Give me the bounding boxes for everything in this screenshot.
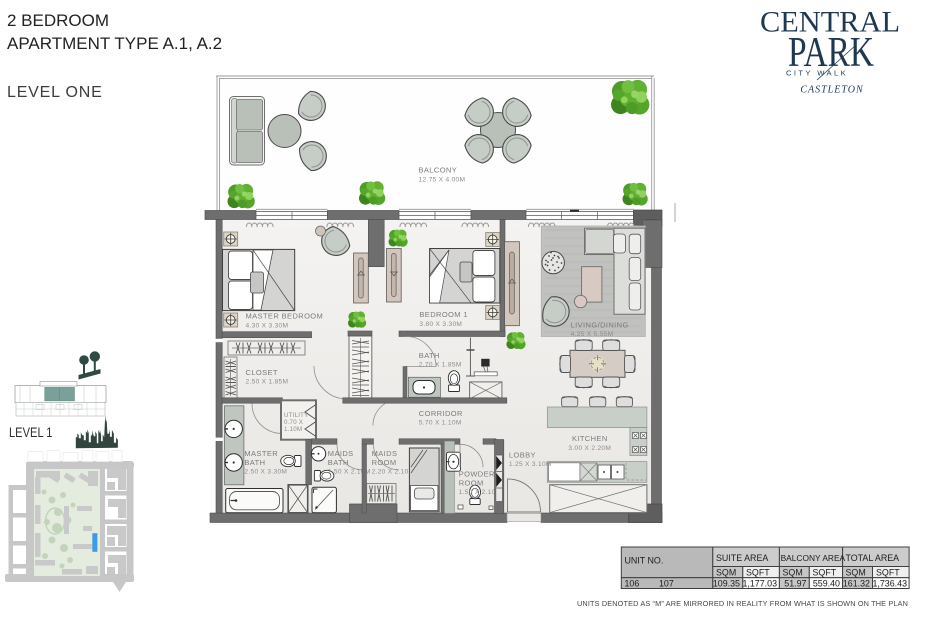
svg-text:APARTMENT TYPE A.1, A.2: APARTMENT TYPE A.1, A.2	[7, 34, 222, 53]
svg-text:TOTAL AREA: TOTAL AREA	[846, 553, 900, 563]
svg-text:LEVEL 1: LEVEL 1	[9, 425, 53, 440]
svg-text:3.00 X 2.20M: 3.00 X 2.20M	[568, 445, 611, 452]
svg-text:12.75 X 4.00M: 12.75 X 4.00M	[419, 177, 466, 184]
svg-text:BEDROOM 1: BEDROOM 1	[419, 310, 468, 319]
svg-text:MASTER: MASTER	[244, 449, 278, 458]
svg-text:2 BEDROOM: 2 BEDROOM	[7, 11, 109, 30]
svg-text:2.70 X 1.85M: 2.70 X 1.85M	[419, 362, 462, 369]
svg-text:1,736.43: 1,736.43	[872, 578, 907, 588]
svg-text:ROOM: ROOM	[459, 479, 484, 488]
svg-text:LOBBY: LOBBY	[509, 451, 536, 460]
svg-text:559.40: 559.40	[813, 578, 840, 588]
svg-text:CORRIDOR: CORRIDOR	[419, 409, 463, 418]
svg-text:4.25 X 5.55M: 4.25 X 5.55M	[571, 331, 614, 338]
svg-text:BALCONY: BALCONY	[419, 166, 458, 175]
svg-text:BATH: BATH	[419, 351, 440, 360]
svg-text:LEVEL ONE: LEVEL ONE	[7, 84, 103, 101]
svg-text:SUITE AREA: SUITE AREA	[716, 553, 768, 563]
svg-text:SQFT: SQFT	[876, 568, 900, 578]
svg-text:106: 106	[625, 578, 640, 588]
svg-text:BATH: BATH	[244, 458, 265, 467]
svg-text:MASTER BEDROOM: MASTER BEDROOM	[246, 312, 324, 321]
svg-text:SQFT: SQFT	[813, 568, 837, 578]
svg-text:107: 107	[659, 578, 674, 588]
svg-text:UTILITY: UTILITY	[284, 412, 308, 419]
svg-text:BATH: BATH	[328, 458, 349, 467]
svg-text:1.25 X 3.10M: 1.25 X 3.10M	[509, 461, 552, 468]
svg-text:MAIDS: MAIDS	[328, 449, 354, 458]
svg-text:3.80 X 3.30M: 3.80 X 3.30M	[419, 321, 462, 328]
svg-text:2.50 X 3.30M: 2.50 X 3.30M	[244, 469, 287, 476]
svg-text:ROOM: ROOM	[372, 458, 397, 467]
svg-text:UNIT NO.: UNIT NO.	[625, 556, 664, 566]
svg-text:51.97: 51.97	[784, 578, 806, 588]
svg-text:4.30 X 3.30M: 4.30 X 3.30M	[246, 323, 289, 330]
svg-text:109.35: 109.35	[713, 578, 740, 588]
svg-text:LIVING/DINING: LIVING/DINING	[571, 321, 629, 330]
svg-text:SQFT: SQFT	[746, 568, 770, 578]
svg-text:SQM: SQM	[716, 568, 736, 578]
svg-text:1.10M: 1.10M	[284, 426, 302, 433]
svg-text:KITCHEN: KITCHEN	[572, 434, 608, 443]
svg-text:MAIDS: MAIDS	[372, 449, 398, 458]
svg-text:1,177.03: 1,177.03	[742, 578, 777, 588]
svg-text:CITY WALK: CITY WALK	[786, 69, 848, 78]
svg-text:UNITS DENOTED AS “M” ARE MIRRO: UNITS DENOTED AS “M” ARE MIRRORED IN REA…	[577, 599, 908, 608]
svg-text:CASTLETON: CASTLETON	[800, 85, 864, 96]
svg-text:SQM: SQM	[846, 568, 866, 578]
svg-text:2.20 X 2.10M: 2.20 X 2.10M	[372, 469, 415, 476]
svg-text:5.70 X 1.10M: 5.70 X 1.10M	[419, 420, 462, 427]
svg-text:2.50 X 1.85M: 2.50 X 1.85M	[246, 379, 289, 386]
svg-text:161.32: 161.32	[843, 578, 870, 588]
svg-text:BALCONY AREA: BALCONY AREA	[781, 553, 846, 563]
svg-text:POWDER: POWDER	[459, 470, 495, 479]
svg-text:0.70 X: 0.70 X	[284, 419, 303, 426]
svg-text:CLOSET: CLOSET	[246, 368, 278, 377]
svg-text:SQM: SQM	[783, 568, 803, 578]
